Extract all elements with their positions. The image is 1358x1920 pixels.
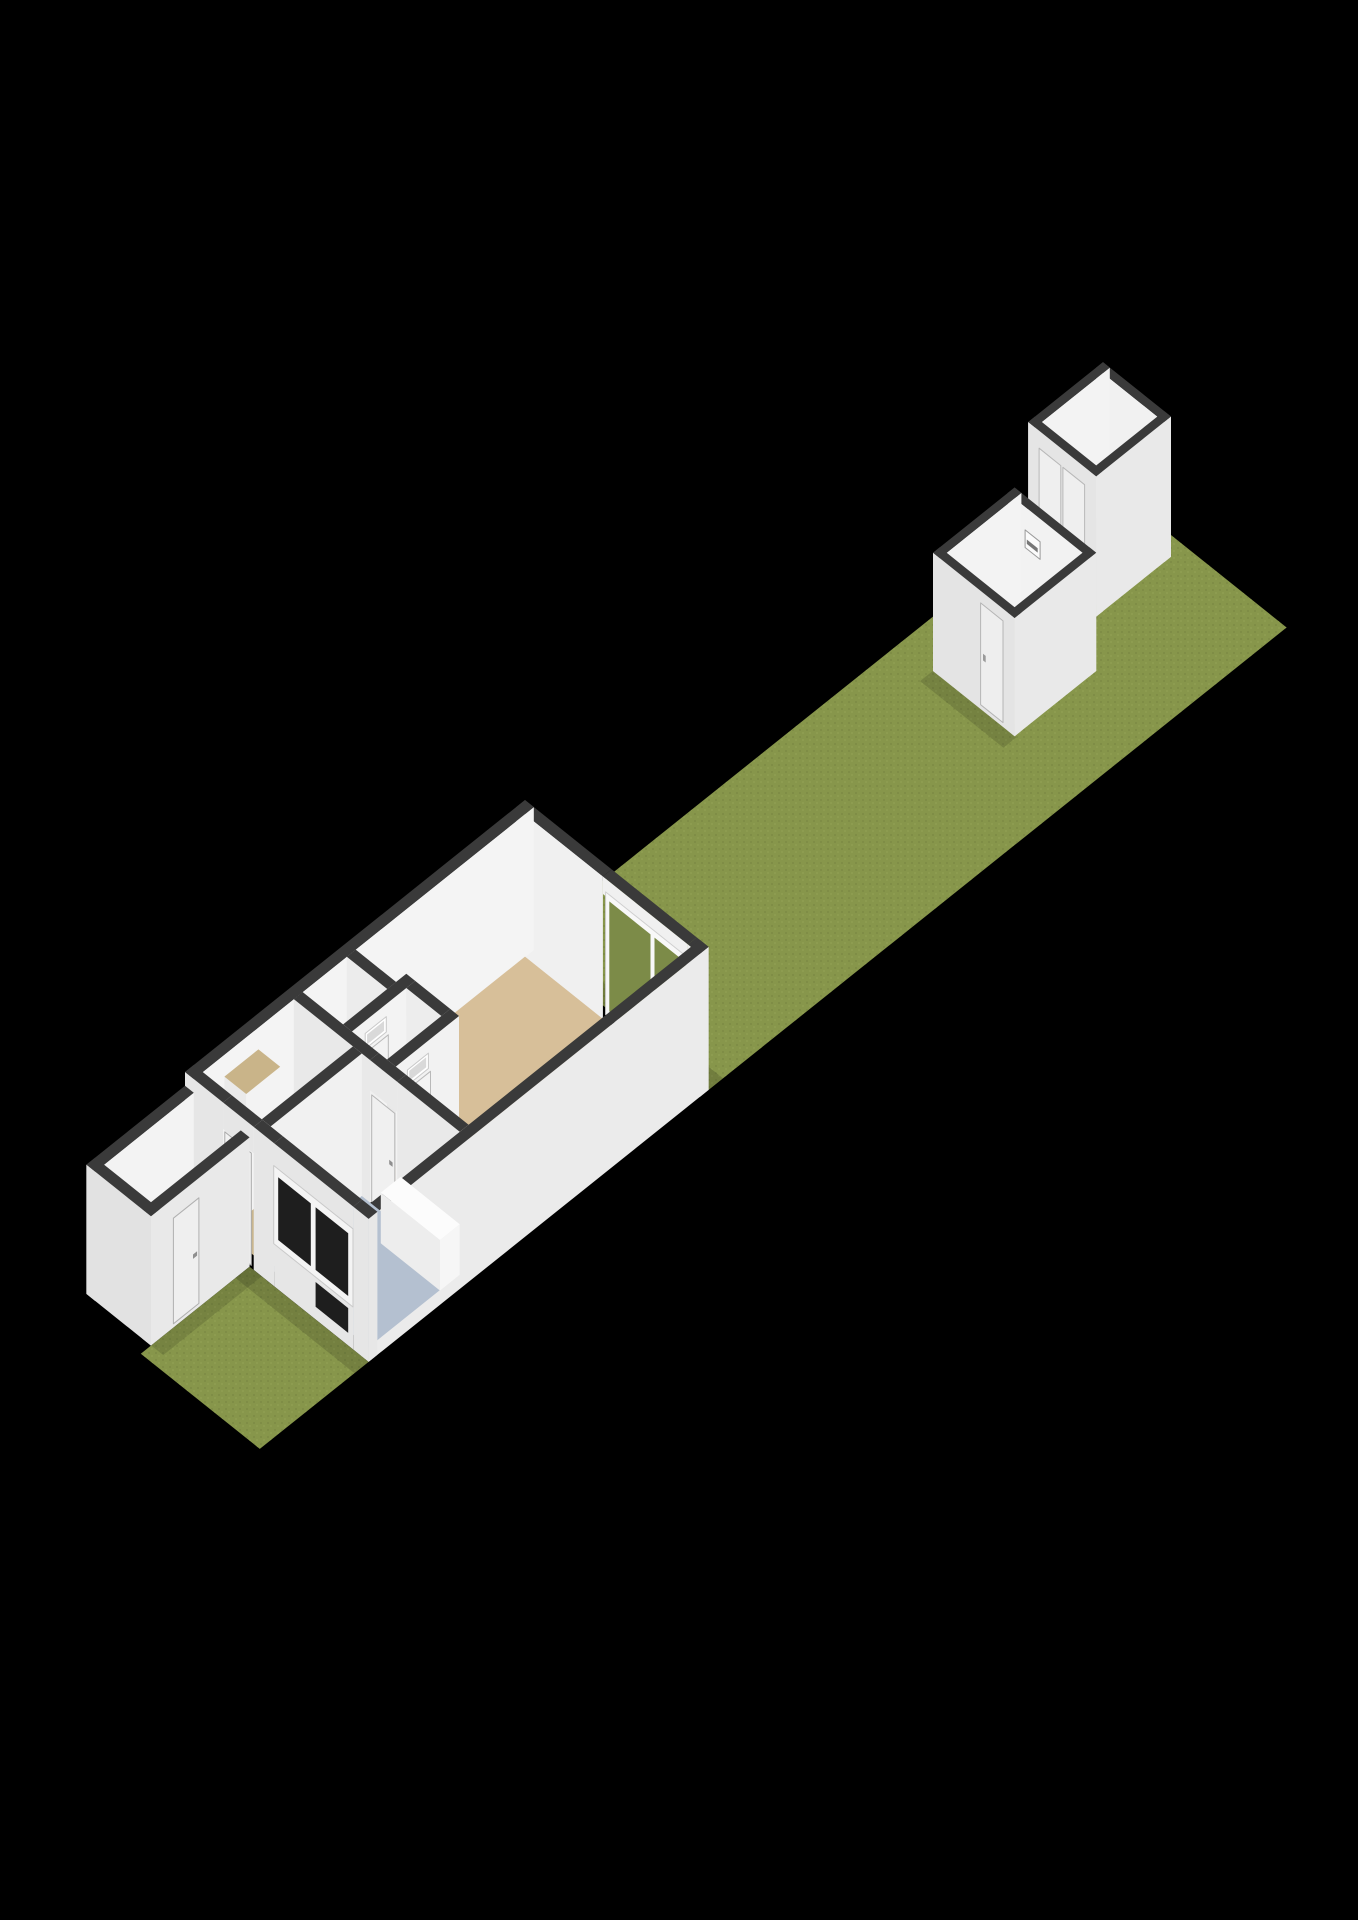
- annex-door: [173, 1198, 199, 1324]
- floorplan-3d-render: [0, 0, 1358, 1920]
- shed1-front-wall-side-face: [1015, 613, 1022, 737]
- floorplan-scene: [0, 0, 1358, 1920]
- facade-wall-right-front-face: [353, 1207, 368, 1362]
- annex-south-wall-side-face: [151, 1209, 160, 1345]
- shed2-front-wall-side-face: [1096, 471, 1103, 617]
- facade-wall-right-side-face: [369, 1212, 378, 1362]
- shed1-door: [981, 603, 1003, 723]
- facade-wall-mid-front-face: [254, 1127, 274, 1286]
